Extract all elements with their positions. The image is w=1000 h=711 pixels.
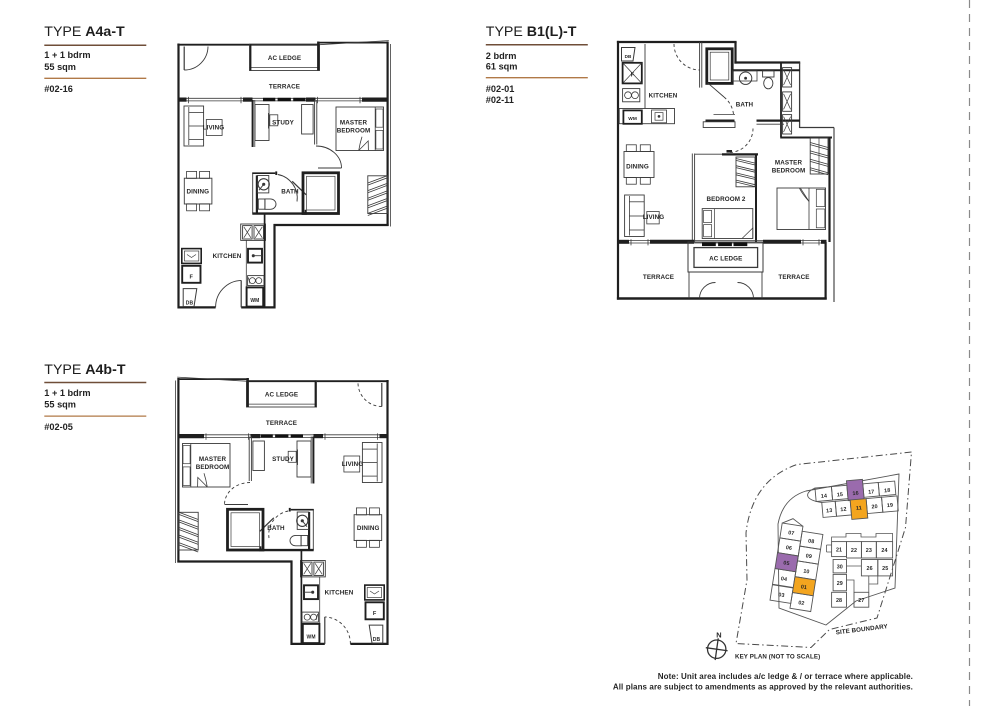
svg-text:WM: WM <box>250 298 259 304</box>
svg-text:01: 01 <box>800 584 807 591</box>
svg-text:LIVING: LIVING <box>342 461 364 468</box>
svg-text:19: 19 <box>887 503 894 510</box>
svg-text:WM: WM <box>307 634 316 640</box>
svg-text:03: 03 <box>778 592 785 599</box>
svg-text:STUDY: STUDY <box>272 120 295 127</box>
svg-text:#02-05: #02-05 <box>44 422 73 432</box>
svg-text:DINING: DINING <box>357 525 380 532</box>
svg-text:BATH: BATH <box>281 189 299 196</box>
svg-text:AC LEDGE: AC LEDGE <box>268 55 301 62</box>
svg-text:55 sqm: 55 sqm <box>44 62 76 72</box>
svg-text:MASTER: MASTER <box>340 120 368 127</box>
svg-text:61 sqm: 61 sqm <box>486 62 518 72</box>
svg-text:24: 24 <box>881 548 887 554</box>
svg-text:TYPE A4a-T: TYPE A4a-T <box>44 24 125 40</box>
svg-text:23: 23 <box>866 548 872 554</box>
svg-text:02: 02 <box>798 600 805 607</box>
svg-text:11: 11 <box>856 505 862 511</box>
svg-text:KITCHEN: KITCHEN <box>649 92 678 99</box>
svg-text:DINING: DINING <box>186 189 209 196</box>
svg-text:1 + 1 bdrm: 1 + 1 bdrm <box>44 388 90 398</box>
svg-text:20: 20 <box>871 504 878 511</box>
svg-text:F: F <box>190 275 194 281</box>
svg-text:07: 07 <box>788 530 795 537</box>
svg-text:#02-11: #02-11 <box>486 95 514 105</box>
svg-text:TERRACE: TERRACE <box>778 274 809 281</box>
svg-text:STUDY: STUDY <box>272 456 295 463</box>
svg-text:AC LEDGE: AC LEDGE <box>265 392 298 399</box>
svg-text:05: 05 <box>783 560 790 567</box>
svg-text:BATH: BATH <box>267 525 285 532</box>
svg-text:BEDROOM: BEDROOM <box>196 464 230 471</box>
svg-text:DB: DB <box>186 300 194 306</box>
svg-text:KEY PLAN (NOT TO SCALE): KEY PLAN (NOT TO SCALE) <box>735 654 820 661</box>
svg-text:BEDROOM 2: BEDROOM 2 <box>706 196 745 203</box>
svg-text:10: 10 <box>803 569 810 576</box>
svg-text:MASTER: MASTER <box>775 159 803 166</box>
svg-text:1 + 1 bdrm: 1 + 1 bdrm <box>44 50 90 60</box>
svg-text:28: 28 <box>836 598 842 604</box>
svg-text:DB: DB <box>373 637 381 643</box>
svg-text:#02-16: #02-16 <box>44 84 73 94</box>
svg-text:TERRACE: TERRACE <box>266 420 297 427</box>
svg-text:MASTER: MASTER <box>199 456 227 463</box>
svg-text:30: 30 <box>837 565 843 571</box>
svg-text:All plans are subject to amend: All plans are subject to amendments as a… <box>613 683 913 692</box>
svg-text:TYPE B1(L)-T: TYPE B1(L)-T <box>486 24 577 40</box>
svg-text:27: 27 <box>858 598 864 604</box>
svg-text:Note: Unit area includes a/c l: Note: Unit area includes a/c ledge & / o… <box>658 672 913 681</box>
svg-text:15: 15 <box>837 492 844 499</box>
svg-text:13: 13 <box>826 508 833 515</box>
svg-text:16: 16 <box>852 491 859 498</box>
svg-text:BEDROOM: BEDROOM <box>337 128 371 135</box>
svg-text:09: 09 <box>805 553 812 560</box>
svg-text:F: F <box>373 611 377 617</box>
svg-text:LIVING: LIVING <box>643 214 665 221</box>
svg-text:12: 12 <box>840 507 847 514</box>
svg-text:21: 21 <box>836 548 842 554</box>
svg-text:N: N <box>716 630 721 639</box>
svg-text:04: 04 <box>780 576 787 583</box>
svg-text:08: 08 <box>808 538 815 545</box>
svg-text:LIVING: LIVING <box>203 125 225 132</box>
svg-text:BATH: BATH <box>736 102 754 109</box>
svg-text:26: 26 <box>866 566 872 572</box>
svg-text:TERRACE: TERRACE <box>643 274 674 281</box>
svg-text:17: 17 <box>868 489 875 496</box>
svg-text:TYPE A4b-T: TYPE A4b-T <box>44 362 126 378</box>
svg-text:18: 18 <box>884 488 891 495</box>
svg-text:55 sqm: 55 sqm <box>44 399 76 409</box>
svg-text:WM: WM <box>628 116 637 122</box>
svg-text:TERRACE: TERRACE <box>269 84 300 91</box>
svg-text:22: 22 <box>851 548 857 554</box>
svg-text:DINING: DINING <box>626 164 649 171</box>
svg-text:AC LEDGE: AC LEDGE <box>709 255 742 262</box>
svg-text:DB: DB <box>625 54 632 59</box>
svg-text:BEDROOM: BEDROOM <box>772 167 806 174</box>
svg-text:F: F <box>631 73 635 79</box>
svg-text:06: 06 <box>785 545 792 552</box>
svg-text:29: 29 <box>837 581 843 587</box>
svg-text:KITCHEN: KITCHEN <box>213 253 242 260</box>
svg-text:#02-01: #02-01 <box>486 84 515 94</box>
svg-text:14: 14 <box>821 493 828 500</box>
svg-text:KITCHEN: KITCHEN <box>325 590 354 597</box>
svg-text:25: 25 <box>882 566 888 572</box>
svg-text:2 bdrm: 2 bdrm <box>486 51 517 61</box>
